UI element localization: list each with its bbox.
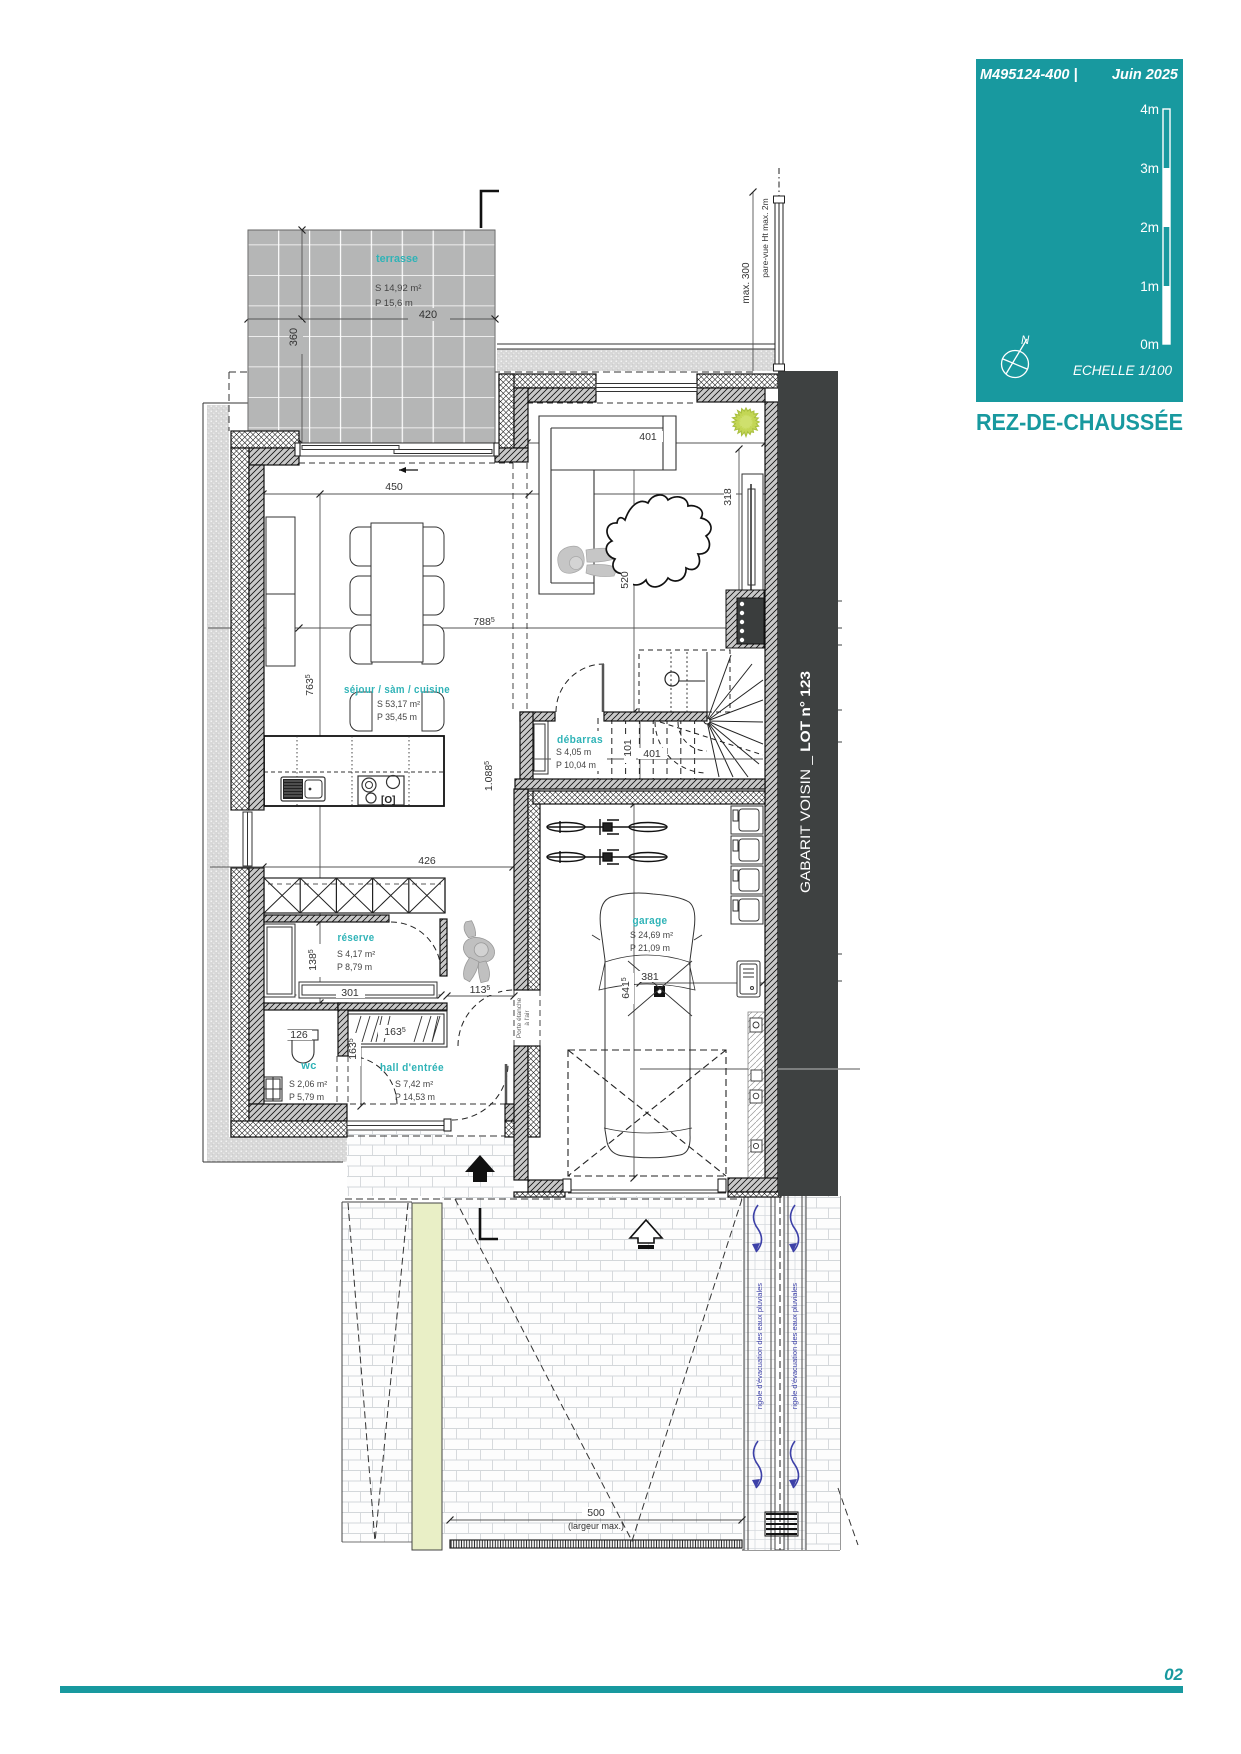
svg-text:381: 381 <box>641 971 659 983</box>
svg-text:REZ-DE-CHAUSSÉE: REZ-DE-CHAUSSÉE <box>976 408 1183 435</box>
svg-text:P 15,6 m: P 15,6 m <box>375 298 413 309</box>
svg-text:S 4,05 m: S 4,05 m <box>556 747 591 757</box>
svg-text:S 24,69 m²: S 24,69 m² <box>630 930 673 940</box>
svg-text:426: 426 <box>418 855 436 867</box>
svg-text:02: 02 <box>1164 1665 1183 1684</box>
svg-text:terrasse: terrasse <box>376 253 418 265</box>
svg-text:[O]: [O] <box>381 795 395 806</box>
svg-text:débarras: débarras <box>557 734 603 746</box>
svg-text:318: 318 <box>722 488 734 506</box>
svg-text:N: N <box>1021 335 1030 347</box>
svg-text:401: 401 <box>643 748 661 760</box>
svg-text:4m: 4m <box>1140 102 1159 117</box>
svg-text:2m: 2m <box>1140 220 1159 235</box>
svg-text:500: 500 <box>587 1507 605 1519</box>
svg-text:Porte étanche: Porte étanche <box>516 997 523 1038</box>
svg-text:S 4,17 m²: S 4,17 m² <box>337 949 375 959</box>
svg-text:P 5,79 m: P 5,79 m <box>289 1092 324 1102</box>
svg-text:M495124-400 |: M495124-400 | <box>980 67 1078 83</box>
svg-text:Juin 2025: Juin 2025 <box>1112 67 1179 83</box>
svg-text:rigole d'évacuation des eaux p: rigole d'évacuation des eaux pluviales <box>790 1283 799 1409</box>
svg-text:réserve: réserve <box>338 932 375 944</box>
svg-text:à l'air: à l'air <box>524 1010 531 1026</box>
svg-text:S 7,42 m²: S 7,42 m² <box>395 1079 433 1089</box>
svg-text:séjour / sàm / cuisine: séjour / sàm / cuisine <box>344 684 450 696</box>
svg-text:P 8,79 m: P 8,79 m <box>337 962 372 972</box>
svg-text:P 10,04 m: P 10,04 m <box>556 760 596 770</box>
svg-text:S 14,92 m²: S 14,92 m² <box>375 283 421 294</box>
svg-text:S 53,17 m²: S 53,17 m² <box>377 699 420 709</box>
svg-text:P 14,53 m: P 14,53 m <box>395 1092 435 1102</box>
svg-text:126: 126 <box>290 1029 308 1041</box>
svg-text:1.0885: 1.0885 <box>483 761 495 791</box>
svg-text:1m: 1m <box>1140 279 1159 294</box>
svg-text:garage: garage <box>633 915 668 927</box>
svg-text:(largeur max.): (largeur max.) <box>568 1521 624 1531</box>
svg-text:hall d'entrée: hall d'entrée <box>380 1062 444 1074</box>
svg-text:401: 401 <box>639 431 657 443</box>
svg-text:520: 520 <box>619 571 631 589</box>
svg-text:GABARIT VOISIN _ LOT n° 123: GABARIT VOISIN _ LOT n° 123 <box>797 671 813 893</box>
svg-text:0m: 0m <box>1140 337 1159 352</box>
svg-text:3m: 3m <box>1140 161 1159 176</box>
svg-text:S 2,06 m²: S 2,06 m² <box>289 1079 327 1089</box>
svg-text:420: 420 <box>419 309 437 321</box>
svg-text:wc: wc <box>300 1060 316 1072</box>
svg-text:360: 360 <box>288 328 300 346</box>
svg-text:max. 300: max. 300 <box>741 262 752 304</box>
svg-text:301: 301 <box>341 987 359 999</box>
svg-text:P 21,09 m: P 21,09 m <box>630 943 670 953</box>
svg-text:ECHELLE 1/100: ECHELLE 1/100 <box>1073 363 1173 378</box>
svg-text:450: 450 <box>385 481 403 493</box>
svg-text:rigole d'évacuation des eaux p: rigole d'évacuation des eaux pluviales <box>755 1283 764 1409</box>
svg-text:P 35,45 m: P 35,45 m <box>377 712 417 722</box>
svg-text:101: 101 <box>622 739 634 757</box>
svg-text:pare-vue Ht max. 2m: pare-vue Ht max. 2m <box>760 198 770 277</box>
